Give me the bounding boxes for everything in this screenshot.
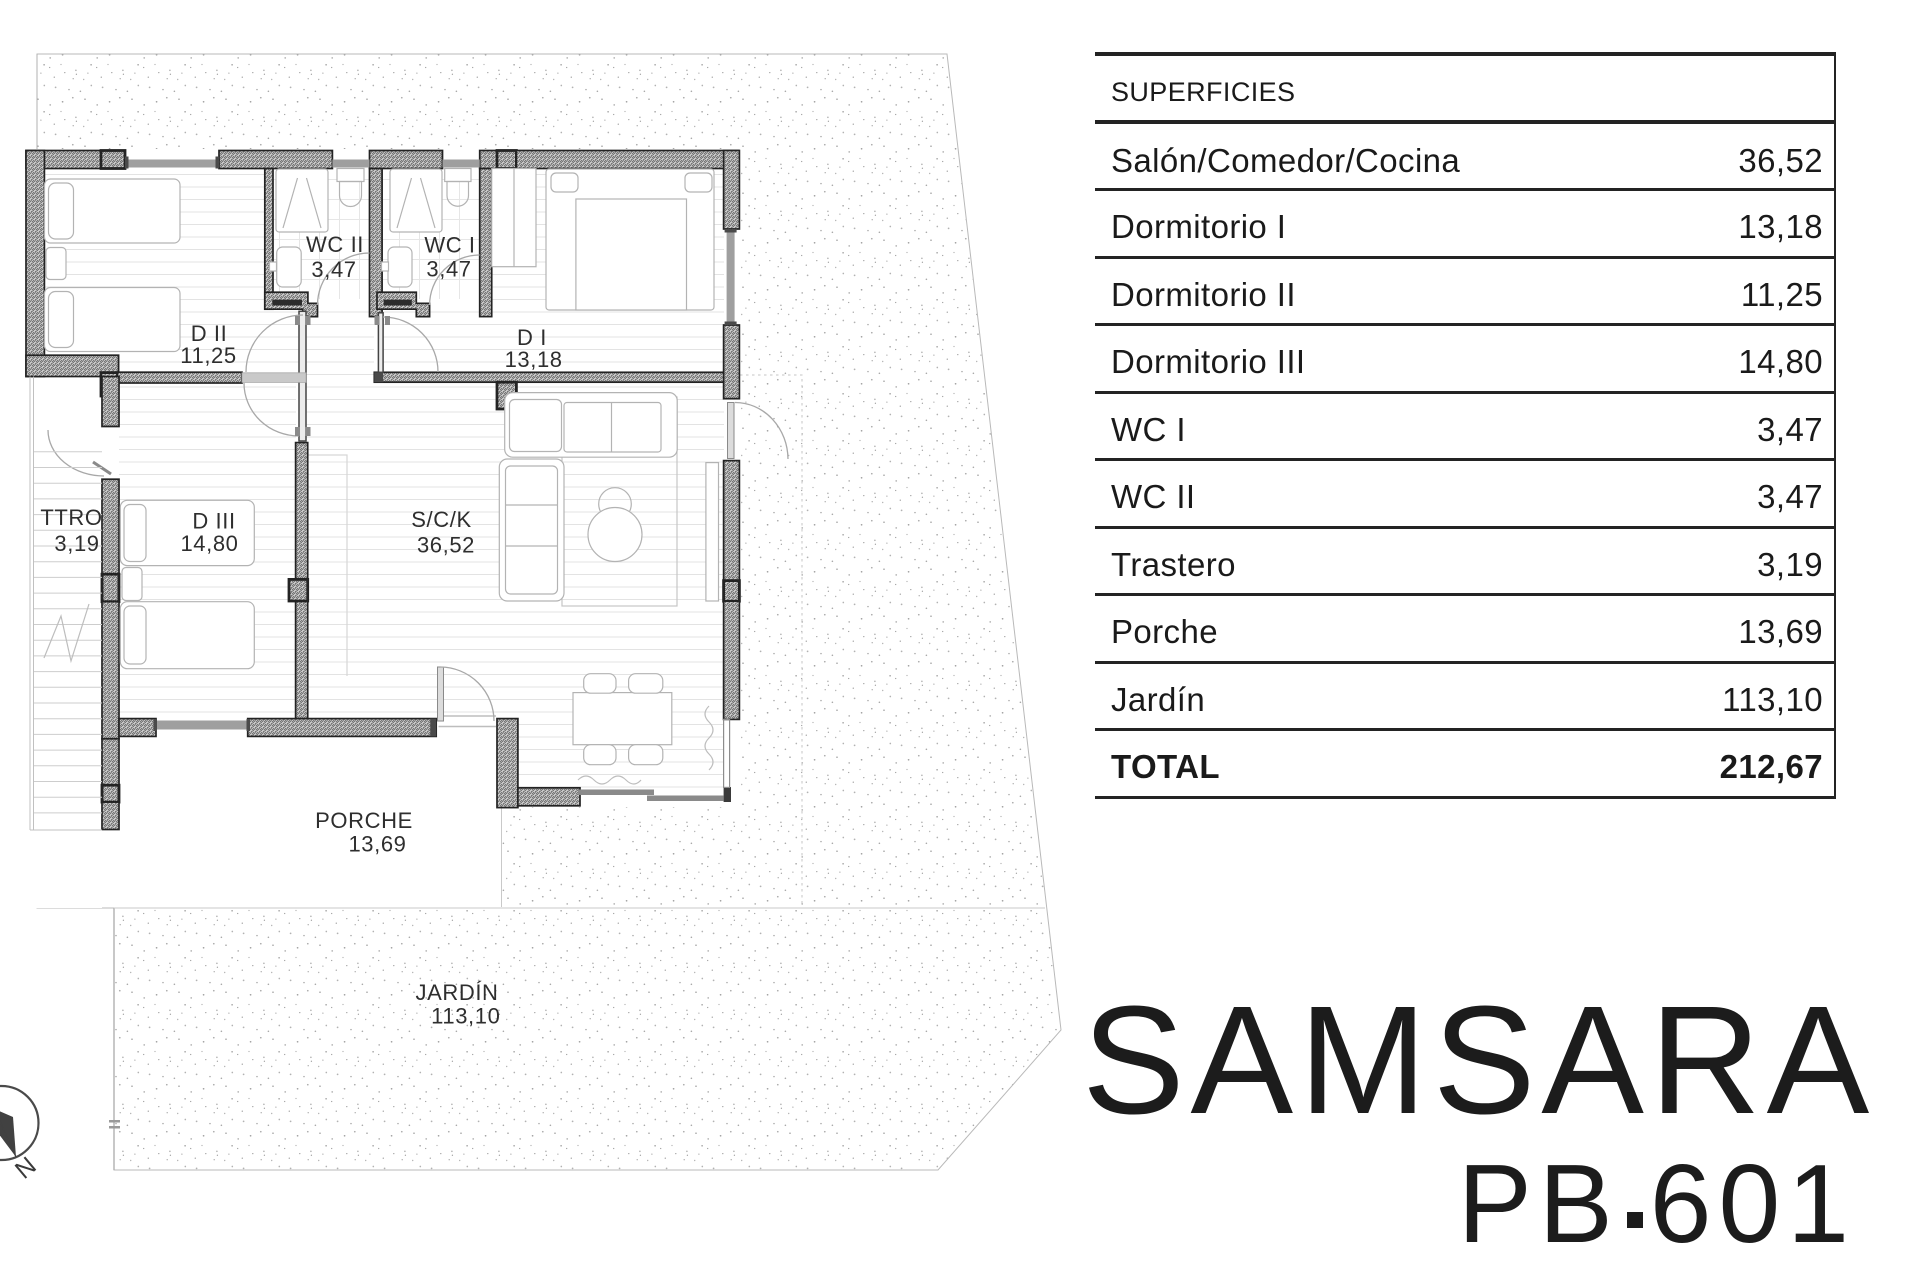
svg-text:PORCHE: PORCHE (315, 808, 413, 833)
svg-text:3,47: 3,47 (426, 257, 471, 282)
svg-text:113,10: 113,10 (431, 1004, 500, 1029)
svg-text:13,18: 13,18 (505, 347, 563, 372)
svg-text:WC II: WC II (306, 232, 364, 257)
svg-text:JARDÍN: JARDÍN (415, 980, 498, 1005)
svg-text:D III: D III (192, 509, 235, 534)
svg-text:TTRO: TTRO (40, 505, 102, 530)
svg-text:WC I: WC I (424, 233, 475, 258)
svg-text:36,52: 36,52 (417, 533, 475, 558)
svg-text:13,69: 13,69 (348, 832, 406, 857)
svg-text:11,25: 11,25 (180, 343, 236, 368)
svg-text:S/C/K: S/C/K (411, 507, 471, 532)
svg-text:14,80: 14,80 (180, 531, 238, 556)
svg-text:3,19: 3,19 (54, 531, 99, 556)
svg-text:3,47: 3,47 (311, 257, 356, 282)
